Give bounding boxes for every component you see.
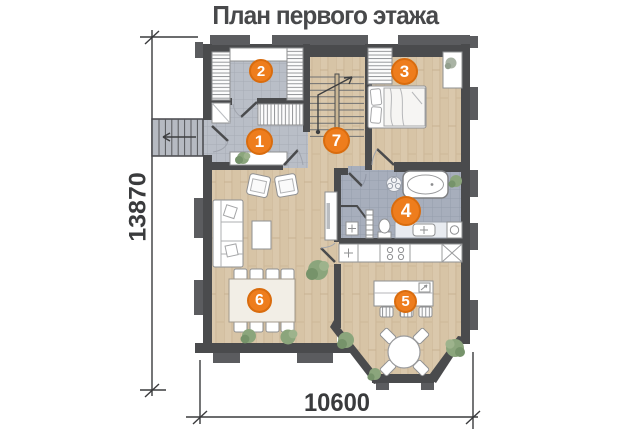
coffee-table [252, 221, 271, 249]
towel-ladder [366, 210, 373, 238]
page-title: План первого этажа [0, 0, 632, 31]
dimension-width-label: 10600 [242, 389, 432, 418]
room-badge-6: 6 [247, 288, 272, 313]
room-badge-7: 7 [323, 127, 350, 154]
bed [368, 86, 426, 128]
washing-machine [447, 222, 462, 238]
floor-plan-drawing [0, 0, 632, 433]
room-badge-3: 3 [391, 58, 418, 85]
sofa [213, 200, 243, 267]
room-badge-5: 5 [394, 290, 417, 313]
armchair [246, 173, 271, 198]
armchair [274, 173, 298, 197]
floor-drain-fixture [387, 177, 402, 192]
dimension-height-label: 13870 [125, 162, 150, 252]
room-badge-2: 2 [249, 59, 273, 83]
floor-plan-page: План первого этажа 13870 10600 1 2 3 4 5… [0, 0, 632, 433]
toilet [378, 219, 391, 238]
room-badge-4: 4 [391, 196, 421, 226]
entrance-steps [152, 119, 203, 156]
room-badge-1: 1 [246, 128, 273, 155]
